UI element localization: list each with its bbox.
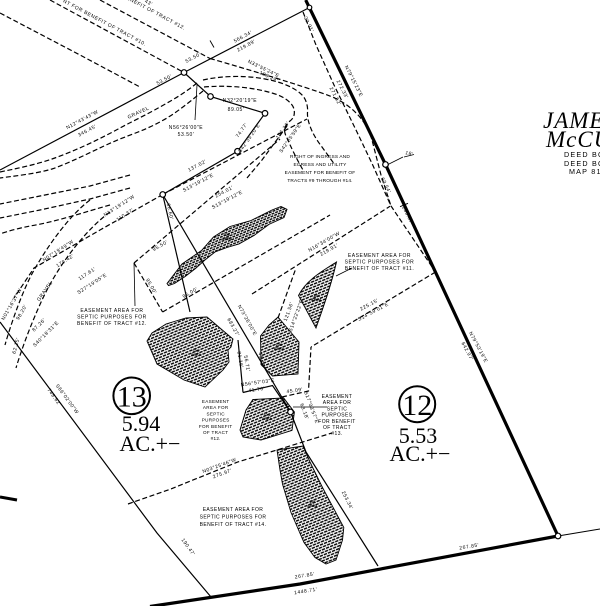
svg-text:53.50': 53.50' (178, 132, 195, 138)
svg-text:SEPTIC: SEPTIC (206, 411, 225, 416)
svg-text:AREA FOR: AREA FOR (203, 405, 229, 410)
svg-text:AREA: AREA (191, 353, 202, 357)
svg-text:RIGHT OF INGRESS AND: RIGHT OF INGRESS AND (290, 154, 350, 160)
svg-text:AREA: AREA (311, 298, 322, 302)
svg-text:AREA: AREA (222, 237, 233, 241)
svg-text:FOR BENEFIT: FOR BENEFIT (199, 424, 233, 429)
svg-text:PURPOSES: PURPOSES (322, 413, 353, 419)
svg-text:AC.+−: AC.+− (390, 441, 451, 466)
svg-text:BENEFIT OF TRACT #11.: BENEFIT OF TRACT #11. (345, 266, 415, 272)
svg-text:EGRESS AND UTILITY: EGRESS AND UTILITY (293, 162, 347, 168)
svg-text:MAP 81: MAP 81 (569, 167, 600, 176)
svg-text:AC.+−: AC.+− (120, 431, 181, 456)
svg-text:AREA FOR: AREA FOR (323, 400, 351, 406)
svg-text:EASEMENT: EASEMENT (322, 394, 353, 400)
svg-text:SEPTIC PURPOSES FOR: SEPTIC PURPOSES FOR (200, 515, 267, 521)
svg-text:89.05': 89.05' (228, 107, 245, 113)
svg-text:TRACTS #9 THROUGH #14.: TRACTS #9 THROUGH #14. (287, 178, 352, 184)
svg-text:AREA: AREA (307, 504, 318, 508)
svg-text:EASEMENT AREA FOR: EASEMENT AREA FOR (348, 253, 411, 259)
svg-text:AREA: AREA (274, 347, 285, 351)
svg-text:N56°26'00"E: N56°26'00"E (169, 125, 204, 131)
svg-text:BENEFIT OF TRACT #14.: BENEFIT OF TRACT #14. (200, 522, 267, 528)
svg-text:EASEMENT AREA FOR: EASEMENT AREA FOR (80, 308, 143, 314)
svg-text:13: 13 (117, 381, 147, 414)
svg-text:12: 12 (402, 389, 432, 422)
svg-text:N32°20'19"E: N32°20'19"E (223, 98, 258, 104)
svg-text:OF TRACT: OF TRACT (323, 425, 351, 431)
svg-text:BENEFIT OF TRACT #12.: BENEFIT OF TRACT #12. (77, 321, 147, 327)
svg-text:DEED BO: DEED BO (564, 150, 600, 159)
svg-text:SEPTIC: SEPTIC (327, 406, 347, 412)
svg-text:#13.: #13. (331, 431, 342, 437)
svg-text:FOR BENEFIT: FOR BENEFIT (318, 419, 355, 425)
svg-text:OF TRACT: OF TRACT (203, 430, 228, 435)
svg-text:McCUL: McCUL (545, 127, 600, 152)
svg-text:SEPTIC PURPOSES FOR: SEPTIC PURPOSES FOR (77, 315, 147, 321)
svg-text:PURPOSES: PURPOSES (202, 418, 230, 423)
svg-text:#12.: #12. (211, 436, 221, 441)
svg-text:EASEMENT FOR BENEFIT OF: EASEMENT FOR BENEFIT OF (285, 170, 356, 176)
svg-text:EASEMENT AREA FOR: EASEMENT AREA FOR (203, 507, 264, 513)
svg-text:EASEMENT: EASEMENT (202, 399, 230, 404)
svg-text:SEPTIC PURPOSES FOR: SEPTIC PURPOSES FOR (345, 260, 415, 266)
svg-text:AREA: AREA (262, 417, 273, 421)
